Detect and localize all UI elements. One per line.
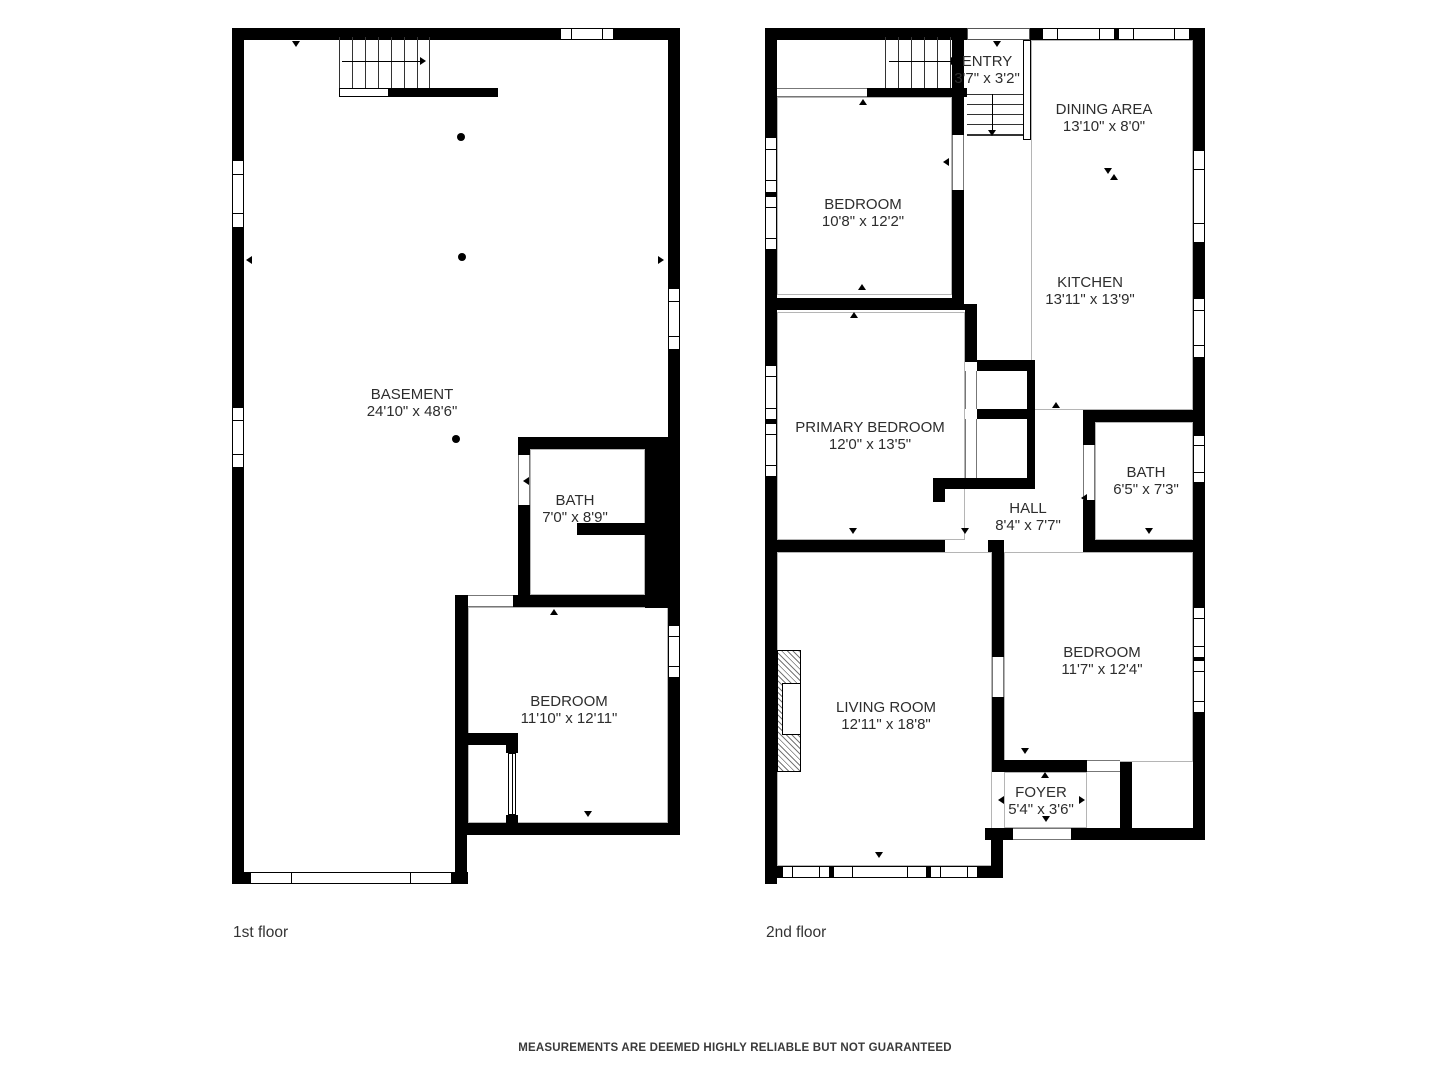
room-name: BATH xyxy=(1113,464,1179,481)
door-marker xyxy=(943,158,949,166)
wall xyxy=(506,733,518,753)
door-opening xyxy=(992,657,1004,697)
stairs-direction-line xyxy=(342,61,422,62)
room-label-bedroom-lower: BEDROOM 11'7" x 12'4" xyxy=(1061,644,1142,678)
room-dims: 24'10" x 48'6" xyxy=(367,403,458,420)
door-opening xyxy=(468,595,513,607)
door-marker xyxy=(858,284,866,290)
column-dot xyxy=(457,133,465,141)
closet-door-opening xyxy=(965,371,977,409)
room-name: FOYER xyxy=(1008,784,1074,801)
wall xyxy=(1083,410,1205,422)
room-dims: 8'4" x 7'7" xyxy=(995,517,1061,534)
window xyxy=(232,407,244,468)
room-label-bedroom: BEDROOM 11'10" x 12'11" xyxy=(521,693,618,727)
door-opening xyxy=(1087,760,1120,772)
measurements-disclaimer: MEASUREMENTS ARE DEEMED HIGHLY RELIABLE … xyxy=(518,1042,952,1054)
door-opening xyxy=(952,135,964,190)
stair-rail xyxy=(339,88,389,97)
wall xyxy=(518,437,530,455)
door-marker xyxy=(998,796,1004,804)
stairs-direction-line xyxy=(889,61,953,62)
wall xyxy=(1120,762,1132,840)
room-name: KITCHEN xyxy=(1045,274,1135,291)
door-marker xyxy=(292,41,300,47)
door-opening xyxy=(1083,445,1095,500)
room-dims: 3'7" x 3'2" xyxy=(954,70,1020,87)
wall xyxy=(765,540,945,552)
fireplace-insert xyxy=(782,683,801,735)
front-door-opening xyxy=(1013,828,1071,840)
wall xyxy=(977,409,1035,419)
window xyxy=(765,196,777,250)
wall xyxy=(765,298,953,310)
wall xyxy=(991,840,1003,878)
stairs xyxy=(339,37,430,89)
room-dims: 12'0" x 13'5" xyxy=(795,436,944,453)
wall xyxy=(389,88,498,97)
window xyxy=(1042,28,1115,40)
room-name: BEDROOM xyxy=(1061,644,1142,661)
wall xyxy=(992,545,1004,657)
floor-label-1st: 1st floor xyxy=(233,924,288,942)
door-marker xyxy=(1081,494,1087,502)
entry-door xyxy=(967,28,1030,40)
wall xyxy=(455,835,467,884)
door-marker xyxy=(1041,772,1049,778)
column-dot xyxy=(458,253,466,261)
floor-label-2nd: 2nd floor xyxy=(766,924,826,942)
window xyxy=(1193,660,1205,713)
room-label-bedroom-upper: BEDROOM 10'8" x 12'2" xyxy=(822,196,904,230)
room-label-bath: BATH 7'0" x 8'9" xyxy=(542,492,608,526)
window xyxy=(1193,298,1205,358)
room-dims: 13'10" x 8'0" xyxy=(1056,118,1153,135)
wall xyxy=(965,310,977,362)
room-dims: 11'10" x 12'11" xyxy=(521,710,618,727)
wall xyxy=(1083,540,1205,552)
room-name: BASEMENT xyxy=(367,386,458,403)
door-marker xyxy=(993,41,1001,47)
wall xyxy=(455,823,680,835)
wall xyxy=(933,478,977,489)
window xyxy=(782,866,830,878)
room-dims: 10'8" x 12'2" xyxy=(822,213,904,230)
cased-opening xyxy=(777,88,867,97)
window xyxy=(1118,28,1190,40)
wall xyxy=(518,505,530,595)
door-marker xyxy=(658,256,664,264)
window xyxy=(765,365,777,420)
wall xyxy=(513,595,647,607)
wall xyxy=(1027,371,1035,489)
room-name: BEDROOM xyxy=(521,693,618,710)
door-marker xyxy=(961,528,969,534)
room-name: LIVING ROOM xyxy=(836,699,936,716)
room-dims: 12'11" x 18'8" xyxy=(836,716,936,733)
door-marker xyxy=(246,256,252,264)
door-marker xyxy=(849,528,857,534)
stairs-arrow-icon xyxy=(420,57,426,65)
door-marker xyxy=(850,312,858,318)
room-name: PRIMARY BEDROOM xyxy=(795,419,944,436)
stair-rail xyxy=(1023,40,1031,140)
door-marker xyxy=(584,811,592,817)
wall xyxy=(977,360,1035,371)
flow-marker xyxy=(1110,174,1118,180)
closet-sliding-door xyxy=(508,753,516,815)
room-dims: 13'11" x 13'9" xyxy=(1045,291,1135,308)
window xyxy=(250,872,452,884)
window xyxy=(930,866,978,878)
floorplan-1st-floor: BASEMENT 24'10" x 48'6" BATH 7'0" x 8'9"… xyxy=(232,28,680,888)
room-dims: 11'7" x 12'4" xyxy=(1061,661,1142,678)
door-marker xyxy=(1145,528,1153,534)
stairs-arrow-icon xyxy=(988,130,996,136)
room-label-basement: BASEMENT 24'10" x 48'6" xyxy=(367,386,458,420)
room-dims: 7'0" x 8'9" xyxy=(542,509,608,526)
window xyxy=(765,137,777,193)
door-marker xyxy=(1052,402,1060,408)
room-label-hall: HALL 8'4" x 7'7" xyxy=(995,500,1061,534)
room-name: DINING AREA xyxy=(1056,101,1153,118)
room-outline xyxy=(1031,40,1193,410)
window xyxy=(232,160,244,228)
window xyxy=(560,28,614,40)
room-label-primary-bedroom: PRIMARY BEDROOM 12'0" x 13'5" xyxy=(795,419,944,453)
room-label-bath: BATH 6'5" x 7'3" xyxy=(1113,464,1179,498)
window xyxy=(668,625,680,678)
window xyxy=(1193,150,1205,243)
room-name: BATH xyxy=(542,492,608,509)
room-name: HALL xyxy=(995,500,1061,517)
wall xyxy=(645,437,680,608)
door-marker xyxy=(859,99,867,105)
wall xyxy=(506,815,518,835)
window xyxy=(833,866,927,878)
room-label-kitchen: KITCHEN 13'11" x 13'9" xyxy=(1045,274,1135,308)
window xyxy=(668,288,680,350)
wall xyxy=(933,489,945,502)
door-marker xyxy=(875,852,883,858)
door-marker xyxy=(1021,748,1029,754)
room-label-entry: ENTRY 3'7" x 3'2" xyxy=(954,53,1020,87)
window xyxy=(1193,435,1205,483)
window xyxy=(765,423,777,477)
room-name: BEDROOM xyxy=(822,196,904,213)
wall xyxy=(1083,422,1095,445)
wall xyxy=(668,28,680,835)
closet-door-opening xyxy=(965,419,977,478)
window xyxy=(1193,607,1205,658)
wall xyxy=(455,595,468,835)
wall xyxy=(952,190,964,307)
stairs-direction-line xyxy=(992,94,993,132)
room-label-dining-area: DINING AREA 13'10" x 8'0" xyxy=(1056,101,1153,135)
room-label-living-room: LIVING ROOM 12'11" x 18'8" xyxy=(836,699,936,733)
wall xyxy=(992,760,1087,772)
room-label-foyer: FOYER 5'4" x 3'6" xyxy=(1008,784,1074,818)
door-marker xyxy=(523,477,529,485)
room-name: ENTRY xyxy=(954,53,1020,70)
wall xyxy=(977,478,1035,489)
column-dot xyxy=(452,435,460,443)
room-dims: 5'4" x 3'6" xyxy=(1008,801,1074,818)
floorplan-2nd-floor: ENTRY 3'7" x 3'2" DINING AREA 13'10" x 8… xyxy=(765,28,1210,888)
room-dims: 6'5" x 7'3" xyxy=(1113,481,1179,498)
door-marker xyxy=(550,609,558,615)
door-marker xyxy=(1079,796,1085,804)
